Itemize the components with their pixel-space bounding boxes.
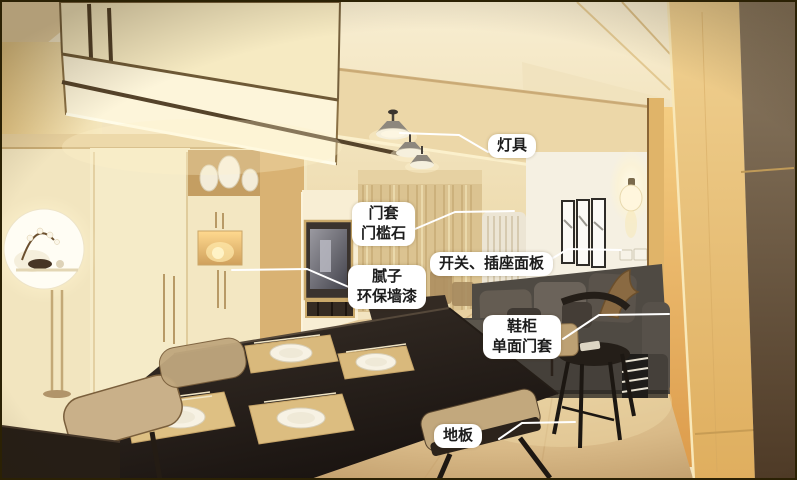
annotation-shoe-cabinet-line2: 单面门套 xyxy=(492,337,552,357)
annotation-floor: 地板 xyxy=(434,424,482,448)
annotation-door-frame-line1: 门套 xyxy=(369,204,399,224)
annotated-room-photo: 灯具 门套 门槛石 开关、插座面板 腻子 环保墙漆 鞋柜 单面门套 地板 xyxy=(0,0,797,480)
annotation-floor-text: 地板 xyxy=(443,426,473,446)
annotation-shoe-cabinet-line1: 鞋柜 xyxy=(507,317,537,337)
annotation-switch-socket: 开关、插座面板 xyxy=(430,252,553,276)
annotation-door-frame: 门套 门槛石 xyxy=(352,202,415,246)
annotation-putty-wall-paint: 腻子 环保墙漆 xyxy=(348,265,426,309)
annotation-shoe-cabinet: 鞋柜 单面门套 xyxy=(483,315,561,359)
annotation-switch-socket-text: 开关、插座面板 xyxy=(439,254,544,274)
annotation-putty-line1: 腻子 xyxy=(372,267,402,287)
annotation-lighting-text: 灯具 xyxy=(497,136,527,156)
annotation-lighting: 灯具 xyxy=(488,134,536,158)
annotation-putty-line2: 环保墙漆 xyxy=(357,287,417,307)
annotation-door-frame-line2: 门槛石 xyxy=(361,224,406,244)
